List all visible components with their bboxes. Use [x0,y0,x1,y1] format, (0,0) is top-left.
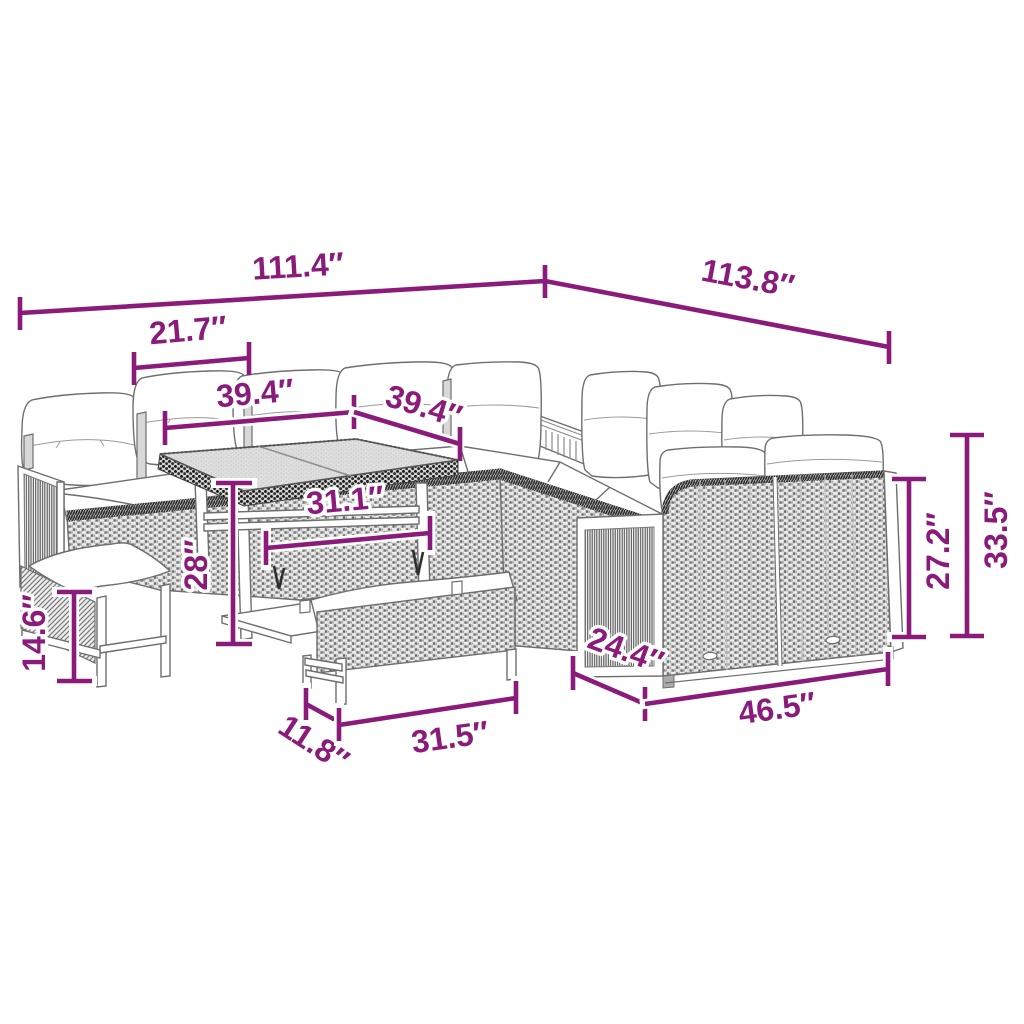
svg-text:111.4″: 111.4″ [251,245,345,287]
svg-text:21.7″: 21.7″ [148,309,228,352]
svg-text:14.6″: 14.6″ [16,594,52,672]
svg-text:31.1″: 31.1″ [305,479,385,522]
svg-text:39.4″: 39.4″ [215,372,295,415]
svg-text:33.5″: 33.5″ [978,491,1014,569]
svg-text:27.2″: 27.2″ [920,512,956,590]
svg-text:28″: 28″ [178,540,214,591]
